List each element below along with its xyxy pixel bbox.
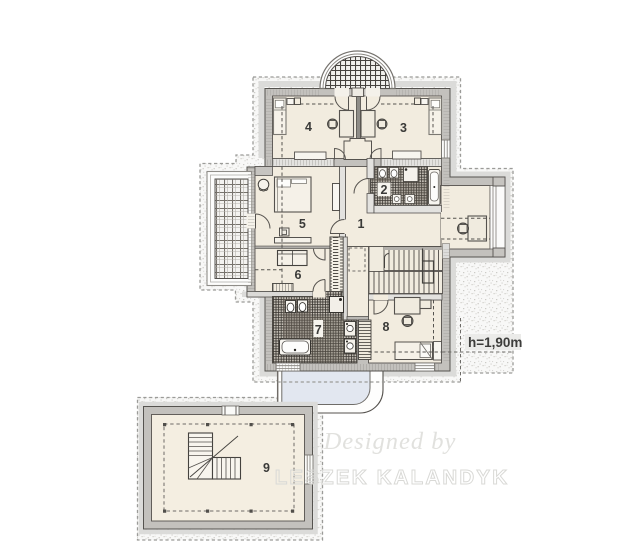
- svg-text:5: 5: [299, 217, 306, 231]
- svg-text:LESZEK KALANDYK: LESZEK KALANDYK: [275, 466, 510, 489]
- svg-text:7: 7: [315, 323, 322, 337]
- svg-text:1: 1: [358, 217, 365, 231]
- svg-text:8: 8: [383, 320, 390, 334]
- svg-text:9: 9: [263, 461, 270, 475]
- svg-text:h=1,90m: h=1,90m: [468, 335, 522, 350]
- svg-text:2: 2: [381, 183, 388, 197]
- svg-text:Designed by: Designed by: [323, 428, 457, 455]
- svg-text:3: 3: [400, 121, 407, 135]
- svg-text:6: 6: [295, 268, 302, 282]
- svg-text:4: 4: [305, 120, 312, 134]
